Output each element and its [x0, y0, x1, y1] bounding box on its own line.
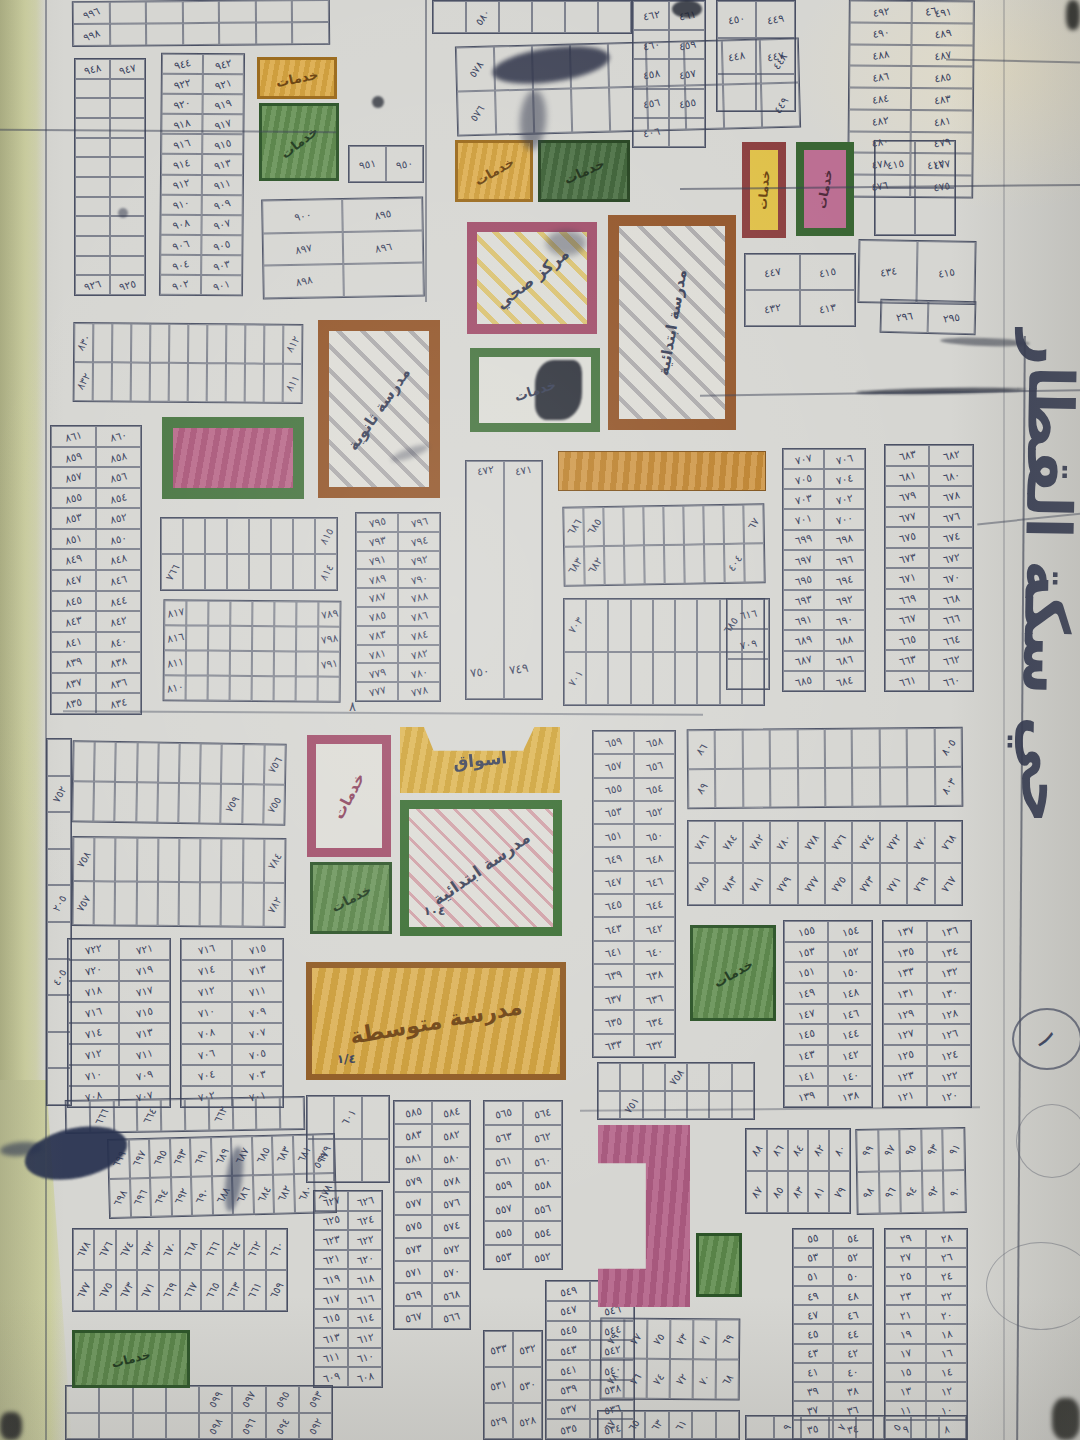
plot-number: ٢٦ — [940, 1251, 953, 1264]
plot-cell: ٧١٢ — [181, 981, 232, 1002]
plot-number: ٣٩ — [806, 1385, 819, 1398]
parcel-label: مدرسة متوسطة — [305, 947, 568, 1094]
plot-cell — [687, 1091, 709, 1119]
plot-number: ١٤ — [940, 1366, 953, 1379]
plot-cell: ٥٧٨ — [456, 46, 495, 91]
plot-number: ٨٤٢ — [109, 615, 128, 629]
plot-number: ٦٧١ — [139, 1281, 157, 1301]
plot-number: ٧٨٥ — [693, 874, 711, 894]
plot-block: ٤٥٠٤٤٩٤٤٨٤٤٧ — [716, 0, 796, 112]
plot-number: ٩٠٠ — [293, 209, 312, 223]
plot-cell — [608, 599, 630, 652]
plot-cell: ٨٣٧ — [51, 673, 96, 694]
plot-cell — [746, 1416, 774, 1439]
plot-cell: ٧١٣ — [119, 1023, 170, 1044]
plot-cell: ١٣ — [885, 1382, 926, 1401]
plot-number: ٧٨٩ — [320, 608, 338, 621]
plot-number: ٧٤ — [651, 1371, 666, 1386]
plot-block: ٧٩٧٧٧٥٧٣٧١٦٩٧٨٧٦٧٤٧٢٧٠٦٨ — [600, 1317, 741, 1400]
plot-number: ٧٨٦ — [410, 609, 429, 623]
plot-number: ٧٧١ — [884, 874, 902, 894]
school-elementary-a: مدرسة ابتدائية — [608, 215, 736, 430]
plot-number: ٧٦٩ — [912, 874, 930, 894]
plot-number: ٦٨٠ — [296, 1183, 313, 1203]
plot-cell: ٦٣٢ — [634, 1034, 675, 1057]
plot-block: ٨٨٨٦٨٤٨٢٨٠٨٧٨٥٨٣٨١٧٩ — [745, 1128, 851, 1214]
plot-cell — [663, 506, 684, 545]
plot-cell — [911, 1416, 939, 1439]
plot-cell: ٨١٤ — [315, 554, 337, 590]
plot-block: ٦٢٧٦٢٦٦٢٥٦٢٤٦٢٣٦٢٢٦٢١٦٢٠٦١٩٦١٨٦١٧٦١٦٦١٥٦… — [313, 1190, 383, 1388]
plot-cell: ٦٧ — [598, 1411, 622, 1439]
plot-cell — [770, 729, 798, 768]
plot-cell — [274, 601, 296, 626]
plot-cell — [643, 506, 664, 545]
plot-cell: ٨٥٧ — [51, 467, 96, 488]
plot-cell: ٧٨٢ — [398, 645, 440, 664]
plot-cell: ٦٤٥ — [593, 894, 634, 917]
plot-number: ٦٣٦ — [645, 992, 664, 1006]
plot-number: ١٢٨ — [940, 1007, 959, 1021]
plot-cell: ٧١١ — [119, 1044, 170, 1065]
plot-cell: ٨٥١ — [51, 529, 96, 550]
plot-cell — [756, 74, 795, 111]
plot-number: ٦٢٢ — [356, 1233, 375, 1247]
plot-cell: ٧٧٦ — [825, 821, 852, 863]
plot-block: ٥٣٣٥٣٢٥٣١٥٣٠٥٢٩٥٢٨ — [483, 1330, 543, 1440]
plot-cell — [709, 1091, 731, 1119]
plot-cell: ٤٥ — [793, 1324, 833, 1343]
plot-number: ٦٧٨ — [75, 1240, 93, 1260]
plot-cell — [243, 744, 265, 784]
plot-cell: ٩٩٨ — [73, 24, 110, 46]
plot-cell: ٤٧ — [793, 1305, 833, 1324]
plot-cell: ٤٥٩ — [669, 30, 705, 59]
plot-cell — [66, 1413, 99, 1440]
plot-cell: ٥٢٨ — [513, 1403, 542, 1439]
parcel-label: خدمات — [70, 1320, 191, 1398]
plot-block: ٧٥٨٧٨٤٧٥٧٧٨٢ — [72, 836, 287, 928]
plot-cell — [296, 651, 318, 676]
plot-cell: ٦١٩ — [314, 1269, 348, 1289]
plot-cell: ٦٤١ — [593, 941, 634, 964]
plot-number: ٤٨٤ — [871, 92, 889, 105]
plot-cell: ٩١٩ — [203, 94, 244, 114]
plot-cell — [825, 729, 853, 768]
plot-cell: ٧٧٩ — [356, 663, 398, 682]
plot-number: ٧٠٥ — [794, 472, 813, 486]
plot-cell: ٢٥ — [885, 1267, 926, 1286]
plot-number: ٦٣٣ — [604, 1038, 623, 1052]
plot-cell: ٤٨١ — [911, 110, 973, 132]
plot-cell — [644, 545, 665, 584]
plot-cell: ٢٧ — [885, 1248, 926, 1267]
plot-cell: ٤٠٦ — [633, 118, 669, 147]
plot-number: ٦٩٨ — [835, 533, 854, 547]
plot-number: ٦٧٨ — [942, 489, 961, 503]
plot-cell: ٨٠ — [829, 1129, 850, 1171]
plot-number: ٧١٤ — [197, 964, 216, 978]
plot-number: ٦٦٠ — [268, 1240, 286, 1260]
plot-cell — [110, 138, 145, 158]
plot-number: ٦٧٥ — [898, 530, 917, 544]
plot-cell — [856, 1416, 884, 1439]
crease-line — [425, 0, 427, 302]
plot-cell: ٧٩٥ — [356, 513, 398, 532]
plot-cell: ٦٦٠ — [929, 671, 973, 692]
plot-cell: ٦٦٦ — [929, 609, 973, 630]
plot-cell: ٦٧٣ — [885, 548, 929, 569]
plot-number: ٧٢١ — [135, 943, 154, 957]
plot-cell: ٦٦٣ — [223, 1270, 244, 1311]
plot-number: ١٦ — [940, 1347, 953, 1360]
plot-number: ٨٩٨ — [294, 275, 313, 289]
plot-cell: ٦٧٥ — [94, 1270, 115, 1311]
plot-cell — [205, 554, 227, 590]
plot-cell: ٥٨٢ — [432, 1124, 470, 1147]
plot-number: ٥٥٤ — [533, 1226, 552, 1240]
plot-cell: ٦٦٥ — [201, 1270, 222, 1311]
plot-cell: ٧١٢ — [68, 1044, 119, 1065]
plot-number: ٦٧٧ — [75, 1281, 93, 1301]
plot-cell: ١٢٧ — [883, 1024, 927, 1045]
plot-number: ٦٨٥ — [794, 674, 813, 688]
plot-cell: ٧٠١ — [783, 509, 824, 529]
plot-cell — [280, 1097, 304, 1129]
plot-number: ٧٩٦ — [410, 515, 429, 529]
plot-cell — [727, 659, 769, 689]
plot-cell: ٤٩١ — [912, 1, 974, 23]
plot-number: ٥٦٨ — [442, 1288, 461, 1302]
plot-number: ٦٢٤ — [356, 1213, 375, 1227]
plot-number: ٤٩٠ — [871, 27, 889, 40]
plot-cell: ٢٦ — [926, 1248, 967, 1267]
plot-number: ٥٥٢ — [533, 1250, 552, 1264]
plot-number: ٦٥ — [626, 1417, 641, 1432]
plot-number: ٨٥١ — [64, 532, 83, 546]
plot-cell: ١٣٥ — [883, 942, 927, 963]
plot-number: ٧٧٨ — [410, 685, 429, 699]
plot-cell: ٥٠ — [833, 1267, 873, 1286]
plot-number: ٧٠١ — [566, 669, 584, 689]
plot-block: ٦٧٦٥٦٣٦١ — [597, 1410, 740, 1440]
plot-number: ٦٩٠ — [193, 1186, 210, 1206]
plot-number: ٥٣٣ — [489, 1342, 508, 1356]
plot-number: ٦٧٩ — [898, 489, 917, 503]
plot-number: ٨١٥ — [317, 526, 335, 546]
plot-cell: ٨٤٠ — [96, 632, 141, 653]
plot-number: ١٤٥ — [797, 1028, 816, 1042]
parcel-label: اسواق — [397, 719, 563, 801]
plot-number: ١٣٦ — [940, 924, 959, 938]
plot-cell: ٦٦٧ — [180, 1270, 201, 1311]
plot-number: ١٩ — [899, 1328, 912, 1341]
plot-cell — [603, 507, 624, 546]
plot-cell — [624, 545, 645, 584]
plot-cell: ٧٠١ — [564, 652, 586, 705]
plot-cell — [675, 599, 697, 652]
plot-cell: ٧٨٤ — [715, 821, 742, 863]
plot-cell: ٦٤٢ — [634, 917, 675, 940]
plot-cell: ٥٤٧ — [546, 1301, 590, 1321]
plot-number: ٤٥ — [806, 1328, 819, 1341]
plot-cell — [664, 545, 685, 584]
plot-cell — [252, 651, 274, 676]
plot-cell — [703, 505, 724, 544]
plot-cell: ٢٩٥ — [928, 301, 976, 334]
plot-cell: ٦٦٦ — [201, 1229, 222, 1270]
plot-cell: ٥٦٦ — [432, 1306, 470, 1329]
plot-number: ٦٦٣ — [898, 653, 917, 667]
plot-cell: ٦٧٤ — [929, 527, 973, 548]
plot-number: ٥٨٣ — [404, 1128, 423, 1142]
plot-number: ٦٧ — [746, 516, 761, 531]
plot-cell: ١٥٤ — [828, 921, 872, 942]
plot-cell: ٩٤٤ — [162, 54, 203, 74]
plot-cell: ٧٨٩ — [318, 602, 340, 627]
plot-cell: ٨٤٨ — [96, 549, 141, 570]
plot-cell: ٥٨١ — [394, 1147, 432, 1170]
plot-number: ٤٥٦ — [642, 97, 660, 110]
plot-number: ٩٢٠ — [173, 97, 192, 111]
plot-cell: ٦٢٤ — [348, 1211, 382, 1231]
plot-cell: ٤٩٠ — [849, 22, 911, 44]
plot-number: ٧٩ — [832, 1184, 847, 1199]
plot-number: ٧١٣ — [248, 964, 267, 978]
plot-number: ٧٨٤ — [720, 832, 738, 852]
plot-cell: ٦٧٨ — [929, 486, 973, 507]
plot-cell: ٦٥٩ — [266, 1270, 287, 1311]
plot-cell — [99, 1386, 132, 1413]
plot-number: ٦٨٦ — [835, 654, 854, 668]
plot-number: ٨٤٠ — [109, 635, 128, 649]
plot-cell: ٥٦٢ — [523, 1125, 562, 1149]
plot-number: ٥٣٧ — [559, 1402, 578, 1416]
plot-cell: ٩٢٥ — [110, 275, 145, 295]
plot-cell: ٥٦١ — [484, 1149, 523, 1173]
plot-number: ٧٠٧ — [794, 452, 813, 466]
plot-number: ٦٦٥ — [203, 1281, 221, 1301]
plot-number: ٦٨٨ — [835, 634, 854, 648]
plot-cell — [770, 768, 798, 807]
plot-cell — [179, 882, 201, 926]
plot-cell: ٦٤٠ — [634, 941, 675, 964]
plot-number: ٤٥٩ — [678, 38, 696, 51]
plot-cell — [293, 518, 315, 554]
plot-cell: ٥٣ — [793, 1248, 833, 1267]
plot-number: ٧١ — [697, 1332, 712, 1347]
plot-number: ٨٣٦ — [109, 676, 128, 690]
plot-cell: ٨٣٩ — [51, 652, 96, 673]
plot-number: ٧٠٤ — [197, 1069, 216, 1083]
plot-cell — [717, 74, 756, 111]
plot-number: ٦٢٠ — [356, 1253, 375, 1267]
plot-cell — [362, 1096, 389, 1139]
plot-cell: ١٤٥ — [784, 1024, 828, 1045]
plot-number: ٧٩١ — [368, 553, 387, 567]
plot-number: ٥٧٠ — [442, 1265, 461, 1279]
plot-number: ١٢٣ — [896, 1069, 915, 1083]
plot-cell: ٥٨٣ — [394, 1124, 432, 1147]
plot-number: ٧٢٢ — [84, 943, 103, 957]
plot-number: ١٢٦ — [940, 1028, 959, 1042]
plot-number: ١٣٣ — [896, 966, 915, 980]
plot-number: ٩١٣ — [213, 157, 232, 171]
parcel-label: مدرسة ابتدائية — [388, 778, 574, 957]
plot-cell: ٦٥٥ — [593, 778, 634, 801]
plot-cell: ٥٥٢ — [523, 1245, 562, 1269]
plot-number: ٥٧١ — [404, 1265, 423, 1279]
plot-number: ٦٩٠ — [835, 614, 854, 628]
plot-cell: ٥٢ — [833, 1248, 873, 1267]
plot-number: ٨١١ — [284, 373, 302, 393]
plot-cell: ٦٨ — [716, 1359, 739, 1399]
plot-number: ٧٨٧ — [368, 591, 387, 605]
plot-number: ٩٤٨ — [83, 62, 102, 77]
plot-number: ٥٨١ — [404, 1151, 423, 1165]
plot-cell: ٧٤ — [647, 1359, 670, 1399]
plot-cell: ٩٤٧ — [110, 59, 145, 79]
plot-number: ١٥٤ — [841, 924, 860, 938]
plot-cell: ١٢٦ — [927, 1024, 971, 1045]
plot-cell: ٧٩١ — [356, 551, 398, 570]
plot-cell — [631, 599, 653, 652]
plot-number: ٦٥٢ — [645, 806, 664, 820]
plot-block: ٧١٦٧١٥٧١٤٧١٣٧١٢٧١١٧١٠٧٠٩٧٠٨٧٠٧٧٠٦٧٠٥٧٠٤٧… — [180, 938, 284, 1108]
plot-cell — [72, 781, 94, 821]
plot-cell: ٦٨٠ — [929, 466, 973, 487]
plot-cell — [178, 783, 200, 823]
plot-number: ٦٦٢ — [212, 1104, 229, 1124]
plot-number: ٦٠٨ — [356, 1370, 375, 1384]
plot-number: ٤٨٣ — [933, 93, 951, 106]
plot-cell: ٨٩٧ — [263, 232, 344, 266]
plot-block: ٦٧٨٦٧٦٦٧٤٦٧٢٦٧٠٦٦٨٦٦٦٦٦٤٦٦٢٦٦٠٦٧٧٦٧٥٦٧٣٦… — [72, 1228, 288, 1312]
plot-number: ٧٥٨ — [667, 1067, 685, 1087]
plot-number: ٨٣٨ — [109, 656, 128, 670]
markets: اسواق — [400, 727, 560, 793]
plot-number: ٧٨٠ — [410, 666, 429, 680]
plot-number: ٦١٩ — [322, 1272, 341, 1286]
plot-cell: ٤٤٧ — [756, 38, 795, 75]
plot-number: ٦٧٠ — [161, 1240, 179, 1260]
plot-cell — [47, 849, 71, 886]
plot-number: ٦٦٧ — [182, 1281, 200, 1301]
plot-number: ١٢١ — [896, 1090, 915, 1104]
plot-cell — [307, 1096, 334, 1139]
plot-number: ٦١٦ — [356, 1292, 375, 1306]
plot-number: ٤٨٩ — [933, 27, 951, 40]
plot-number: ٤٥٨ — [642, 67, 660, 80]
plot-number: ٢٥ — [899, 1270, 912, 1283]
plot-cell: ٧٨٣ — [715, 863, 742, 905]
plot-block: ٥٨٥٥٨٤٥٨٣٥٨٢٥٨١٥٨٠٥٧٩٥٧٨٥٧٧٥٧٦٥٧٥٥٧٤٥٧٣٥… — [393, 1100, 471, 1330]
plot-number: ٧١٢ — [84, 1048, 103, 1062]
plot-number: ٥٣٠ — [518, 1378, 537, 1392]
plot-number: ٧٧٧ — [368, 685, 387, 699]
plot-number: ٥٤٣ — [559, 1343, 578, 1357]
plot-cell: ٨٤٣ — [51, 611, 96, 632]
plot-cell — [75, 216, 110, 236]
plot-number: ٦٤٨ — [645, 852, 664, 866]
plot-number: ٦٦٤ — [942, 633, 961, 647]
plot-cell: ٧١٤ — [68, 1023, 119, 1044]
plot-cell: ١٣٢ — [927, 962, 971, 983]
plot-number: ٢٤ — [940, 1270, 953, 1283]
plot-cell — [183, 23, 220, 45]
ink-stain — [672, 0, 702, 18]
plot-cell — [200, 743, 222, 783]
plot-number: ٥٣ — [806, 1251, 819, 1264]
plot-cell — [179, 838, 201, 882]
plot-number: ٦٧١ — [898, 571, 917, 585]
plot-cell — [704, 544, 725, 583]
plot-number: ٩٥١ — [358, 157, 376, 170]
crease-line — [45, 0, 47, 1440]
plot-number: ٧٥٢ — [50, 784, 68, 804]
plot-number: ٨١٧ — [166, 606, 184, 619]
plot-number: ٧٠٠ — [835, 513, 854, 527]
plot-cell — [230, 601, 252, 626]
plot-cell: ٦٩٠ — [191, 1176, 213, 1216]
plot-cell: ٤٣٤ — [858, 240, 917, 303]
plot-cell: ٦٧٦ — [94, 1229, 115, 1270]
plot-number: ٤١٥ — [818, 265, 836, 278]
plot-number: ١٣٠ — [940, 986, 959, 1000]
plot-number: ١٢٠ — [940, 1090, 959, 1104]
plot-cell: ٦٩٥ — [149, 1138, 171, 1178]
plot-number: ٣٨ — [846, 1385, 859, 1398]
plot-cell: ٩٤٨ — [75, 59, 110, 79]
plot-cell: ٧٧ — [624, 1319, 647, 1359]
plot-number: ٨٦ — [770, 1142, 785, 1157]
plot-number: ٦٤٤ — [645, 899, 664, 913]
plot-number: ٤٤ — [846, 1328, 859, 1341]
plot-cell — [110, 98, 145, 118]
plot-cell: ٦١٦ — [727, 599, 769, 629]
plot-cell: ٥٥٧ — [484, 1197, 523, 1221]
plot-number: ١٤٨ — [841, 986, 860, 1000]
plot-cell: ٥٦٩ — [394, 1283, 432, 1306]
plot-cell: ٥٧٥ — [394, 1215, 432, 1238]
plot-number: ٧٢٠ — [84, 964, 103, 978]
plot-cell: ٧٩٦ — [398, 513, 440, 532]
plot-number: ١٢٥ — [896, 1048, 915, 1062]
plot-number: ٧٠٣ — [248, 1069, 267, 1083]
plot-cell: ٦٢٠ — [348, 1250, 382, 1270]
plot-number: ٦٥٤ — [645, 782, 664, 796]
plot-cell: ٥٦٨ — [432, 1283, 470, 1306]
plot-number: ٩١٢ — [172, 177, 191, 191]
plot-cell — [293, 554, 315, 590]
plot-cell — [115, 837, 137, 881]
plot-number: ٨٣٩ — [64, 656, 83, 670]
plot-number: ٤١٣ — [818, 301, 836, 314]
plot-cell: ١٤٦ — [828, 1004, 872, 1025]
plot-number: ٦٤١ — [604, 945, 623, 959]
plot-cell: ٨٩ — [688, 769, 716, 808]
plot-cell: ٩٨ — [857, 1172, 879, 1214]
plot-number: ٧٠٥ — [248, 1048, 267, 1062]
plot-cell: ١٣٣ — [883, 962, 927, 983]
plot-cell: ١٣١ — [883, 983, 927, 1004]
plot-cell — [825, 768, 853, 807]
plot-number: ٥٢٨ — [518, 1414, 537, 1428]
plot-cell — [207, 324, 226, 363]
plot-number: ٨٥٦ — [109, 471, 128, 485]
plot-cell: ٦٧٢ — [137, 1229, 158, 1270]
services-green-e — [696, 1233, 742, 1297]
